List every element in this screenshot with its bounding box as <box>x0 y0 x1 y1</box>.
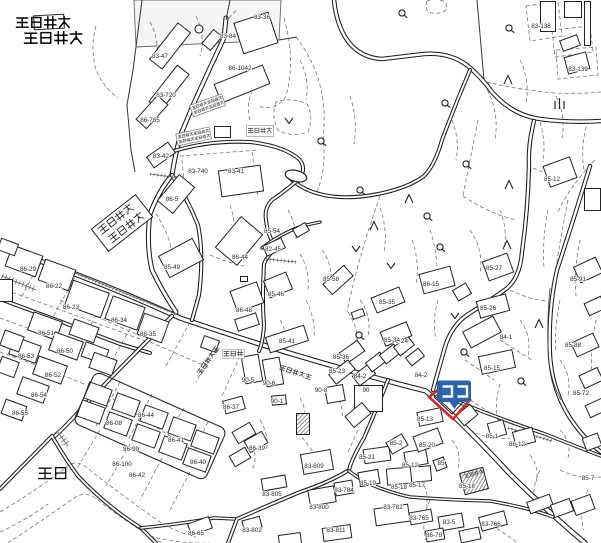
svg-text:85-72: 85-72 <box>573 390 590 397</box>
svg-text:86-37: 86-37 <box>223 404 240 411</box>
svg-text:86-29: 86-29 <box>20 266 37 273</box>
svg-text:86-22: 86-22 <box>46 283 63 290</box>
svg-text:86-65: 86-65 <box>188 530 205 537</box>
svg-text:86-44: 86-44 <box>138 412 155 419</box>
svg-text:86-53: 86-53 <box>18 353 35 360</box>
svg-text:84-2: 84-2 <box>415 372 428 379</box>
svg-text:83-139: 83-139 <box>568 66 588 73</box>
svg-text:85-26: 85-26 <box>480 305 497 312</box>
svg-text:85-27: 85-27 <box>486 265 503 272</box>
svg-text:86-34: 86-34 <box>111 317 128 324</box>
svg-text:86-08: 86-08 <box>106 420 123 427</box>
svg-text:83-740: 83-740 <box>188 168 208 175</box>
svg-text:86-5: 86-5 <box>166 196 179 203</box>
svg-text:85-19: 85-19 <box>360 480 377 487</box>
svg-text:86-44: 86-44 <box>232 254 249 261</box>
svg-text:86-50: 86-50 <box>57 348 74 355</box>
svg-text:85-91: 85-91 <box>570 276 587 283</box>
svg-text:85-58: 85-58 <box>323 276 340 283</box>
svg-text:85-23: 85-23 <box>329 368 346 375</box>
svg-text:86-55: 86-55 <box>12 410 29 417</box>
svg-text:83-720: 83-720 <box>156 92 176 99</box>
svg-text:85-20: 85-20 <box>419 442 436 449</box>
svg-text:86-1042: 86-1042 <box>228 65 252 72</box>
svg-text:86-42: 86-42 <box>129 472 146 479</box>
svg-text:84-2: 84-2 <box>354 373 367 380</box>
svg-text:83-805: 83-805 <box>262 491 282 498</box>
svg-text:86-99: 86-99 <box>123 446 140 453</box>
svg-text:86-54: 86-54 <box>31 392 48 399</box>
svg-text:83-5: 83-5 <box>443 519 456 526</box>
svg-text:86-52: 86-52 <box>45 372 62 379</box>
svg-text:85-35: 85-35 <box>379 299 396 306</box>
svg-text:83-766: 83-766 <box>481 521 501 528</box>
svg-text:85-54: 85-54 <box>264 228 281 235</box>
svg-text:82-45: 82-45 <box>265 246 282 253</box>
svg-text:86-765: 86-765 <box>140 117 160 124</box>
svg-text:83-42: 83-42 <box>153 153 170 160</box>
svg-text:85-13: 85-13 <box>417 416 434 423</box>
svg-text:85-49: 85-49 <box>164 264 181 271</box>
svg-text:86-41: 86-41 <box>168 437 185 444</box>
svg-text:83-782: 83-782 <box>383 504 403 511</box>
svg-text:83-802: 83-802 <box>242 527 262 534</box>
svg-text:85-21: 85-21 <box>359 454 376 461</box>
svg-text:83-765: 83-765 <box>409 515 429 522</box>
svg-text:83-47: 83-47 <box>152 53 169 60</box>
svg-text:85-34: 85-34 <box>384 337 401 344</box>
svg-text:83-784: 83-784 <box>334 487 354 494</box>
svg-text:85-46: 85-46 <box>268 291 285 298</box>
svg-text:83-811: 83-811 <box>326 527 346 534</box>
svg-text:85-18: 85-18 <box>391 484 408 491</box>
svg-text:85-17: 85-17 <box>409 482 426 489</box>
svg-text:83-809: 83-809 <box>304 463 324 470</box>
svg-text:86-100: 86-100 <box>112 461 132 468</box>
svg-text:83-36: 83-36 <box>254 14 271 21</box>
svg-text:85-2: 85-2 <box>390 440 403 447</box>
svg-text:86-48: 86-48 <box>236 307 253 314</box>
svg-text:85-1: 85-1 <box>486 433 499 440</box>
svg-text:86-35: 86-35 <box>140 331 157 338</box>
svg-text:86-40: 86-40 <box>190 459 207 466</box>
svg-text:84-1: 84-1 <box>500 334 513 341</box>
svg-text:85-41: 85-41 <box>279 338 296 345</box>
svg-text:86-78: 86-78 <box>426 532 443 539</box>
svg-text:90: 90 <box>362 387 370 394</box>
svg-text:90-6: 90-6 <box>263 380 276 387</box>
svg-text:86-12: 86-12 <box>509 441 526 448</box>
svg-text:90-8: 90-8 <box>315 387 328 394</box>
svg-text:85: 85 <box>437 460 445 467</box>
svg-text:86-51: 86-51 <box>38 330 55 337</box>
svg-text:86-15: 86-15 <box>423 281 440 288</box>
svg-text:83-138: 83-138 <box>531 23 551 30</box>
svg-text:85-12: 85-12 <box>544 176 561 183</box>
svg-text:85-12: 85-12 <box>402 462 419 469</box>
svg-text:85-15: 85-15 <box>484 365 501 372</box>
svg-text:83-41: 83-41 <box>228 168 245 175</box>
svg-text:85-16: 85-16 <box>459 483 476 490</box>
svg-text:83-84: 83-84 <box>220 33 237 40</box>
svg-text:86-23: 86-23 <box>63 304 80 311</box>
svg-text:83-800: 83-800 <box>309 504 329 511</box>
svg-text:85-7: 85-7 <box>582 475 595 482</box>
svg-text:90-1: 90-1 <box>271 398 284 405</box>
svg-text:85-88: 85-88 <box>565 342 582 349</box>
svg-text:85-36: 85-36 <box>333 354 350 361</box>
svg-text:90-5: 90-5 <box>242 377 255 384</box>
svg-text:86-39: 86-39 <box>249 445 266 452</box>
